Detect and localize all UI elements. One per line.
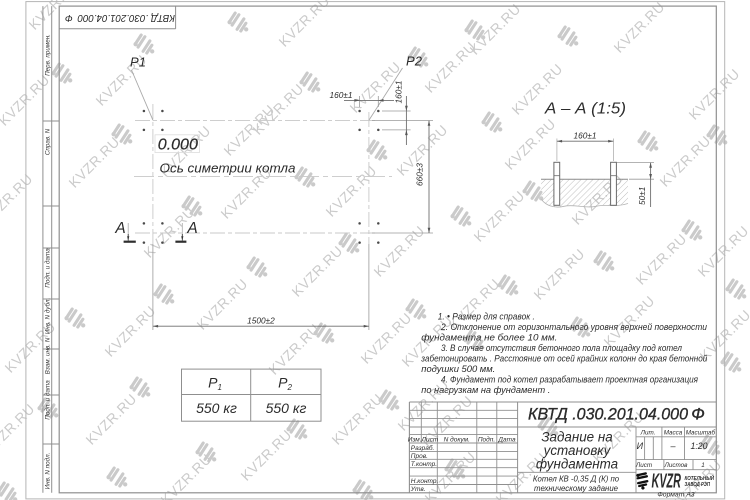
- svg-text:1: 1: [701, 462, 705, 469]
- svg-text:И: И: [637, 441, 644, 451]
- svg-text:Лист: Лист: [635, 462, 652, 469]
- svg-text:Масштаб: Масштаб: [686, 429, 716, 437]
- svg-text:Р2: Р2: [406, 54, 423, 69]
- svg-text:Разраб.: Разраб.: [411, 444, 435, 452]
- svg-text:КВТД .030.201.04.000 Ф: КВТД .030.201.04.000 Ф: [65, 12, 175, 24]
- svg-text:А – А (1:5): А – А (1:5): [544, 101, 626, 118]
- svg-text:Масса: Масса: [664, 430, 683, 437]
- svg-text:660±3: 660±3: [415, 163, 425, 186]
- svg-text:ЗАВОД РЭП: ЗАВОД РЭП: [685, 482, 711, 488]
- svg-text:Инв. N подл.: Инв. N подл.: [43, 453, 51, 490]
- svg-text:Изм.Лист: Изм.Лист: [408, 437, 439, 444]
- svg-text:Справ. N: Справ. N: [44, 128, 51, 155]
- svg-text:4. Фундамент под котел разраба: 4. Фундамент под котел разрабатывает про…: [441, 374, 698, 384]
- svg-text:160±1: 160±1: [329, 90, 352, 100]
- svg-text:по нагрузкам на фундамент .: по нагрузкам на фундамент .: [421, 385, 550, 395]
- svg-text:Лит.: Лит.: [640, 430, 656, 437]
- svg-text:забетонировать . Расстояние от: забетонировать . Расстояние от осей край…: [420, 353, 707, 363]
- svg-text:1500±2: 1500±2: [247, 315, 275, 325]
- svg-text:А: А: [114, 220, 125, 237]
- svg-text:550 кг: 550 кг: [266, 400, 307, 416]
- svg-text:Инв. N дубл.: Инв. N дубл.: [43, 298, 51, 334]
- svg-text:Подп. и дата: Подп. и дата: [43, 380, 51, 420]
- svg-text:50±1: 50±1: [637, 187, 647, 205]
- svg-text:550 кг: 550 кг: [196, 400, 237, 416]
- svg-text:А: А: [186, 220, 197, 237]
- svg-text:2. Отклонение от горизонтально: 2. Отклонение от горизонтального уровня …: [440, 322, 707, 332]
- svg-text:3. В случае отсутствия бетонно: 3. В случае отсутствия бетонного пола пл…: [441, 343, 682, 353]
- svg-text:Н.контр.: Н.контр.: [411, 478, 439, 485]
- svg-text:KVZR: KVZR: [652, 469, 682, 492]
- svg-text:КОТЕЛЬНЫЙ: КОТЕЛЬНЫЙ: [685, 474, 715, 482]
- svg-text:Пров.: Пров.: [411, 453, 428, 460]
- svg-text:–: –: [669, 441, 676, 451]
- svg-text:Дата: Дата: [497, 437, 516, 444]
- svg-text:Перв. примен.: Перв. примен.: [44, 34, 51, 76]
- svg-text:подушки 500 мм.: подушки 500 мм.: [421, 364, 495, 374]
- svg-text:160±1: 160±1: [394, 80, 404, 103]
- svg-text:Подп. и дата: Подп. и дата: [43, 248, 51, 288]
- svg-text:Утв.: Утв.: [410, 486, 426, 493]
- svg-text:Р1: Р1: [130, 55, 146, 70]
- svg-text:N докум.: N докум.: [444, 436, 470, 444]
- svg-text:Т.контр.: Т.контр.: [411, 461, 437, 468]
- svg-text:Формат А3: Формат А3: [657, 491, 694, 498]
- svg-text:фундамента: фундамента: [536, 457, 618, 472]
- svg-text:1. • Размер для справок .: 1. • Размер для справок .: [438, 311, 535, 321]
- svg-text:Взам. инв. N: Взам. инв. N: [44, 337, 51, 374]
- svg-text:1:20: 1:20: [690, 441, 707, 451]
- svg-text:КВТД .030.201.04.000: КВТД .030.201.04.000: [528, 405, 689, 424]
- svg-text:Подп.: Подп.: [478, 436, 495, 444]
- svg-text:Ф: Ф: [691, 405, 705, 424]
- svg-text:Ось симетрии котла: Ось симетрии котла: [160, 160, 296, 175]
- svg-text:Котел КВ -0,35 Д (К) по: Котел КВ -0,35 Д (К) по: [533, 475, 620, 484]
- svg-text:160±1: 160±1: [573, 131, 596, 141]
- svg-text:Листов: Листов: [664, 462, 689, 469]
- svg-text:0.000: 0.000: [158, 136, 198, 153]
- svg-text:техническому задание: техническому задание: [534, 484, 619, 493]
- svg-text:фундамента не более 10 мм.: фундамента не более 10 мм.: [421, 332, 557, 342]
